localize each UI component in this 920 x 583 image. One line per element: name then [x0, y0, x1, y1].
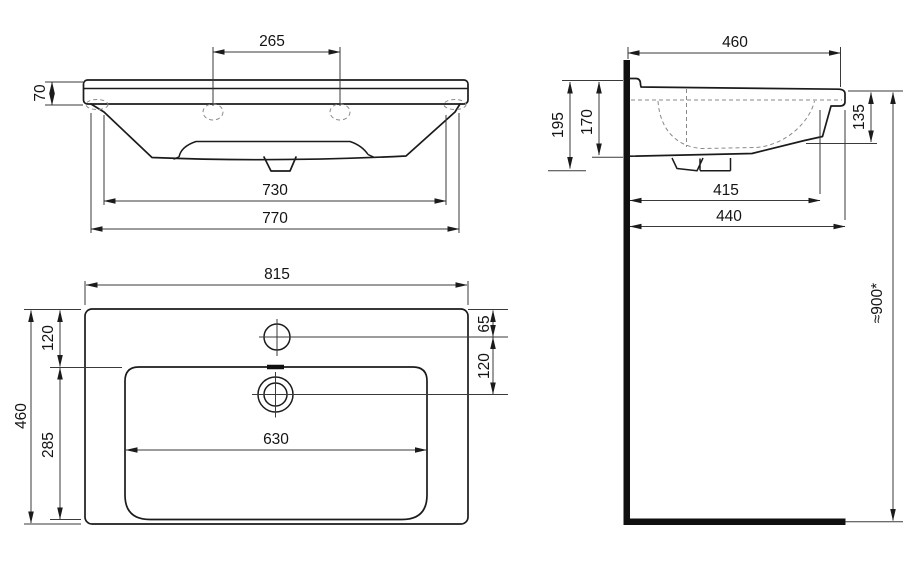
drain-centerlines	[252, 372, 508, 418]
side-drain-trap	[672, 158, 731, 171]
dim-label-height-to-bottom: 170	[579, 109, 596, 135]
dim-label-basin-depth: 285	[40, 432, 57, 458]
dim-label-rim-height: 70	[32, 84, 49, 102]
floor-section	[624, 519, 846, 526]
fixing-hole-right-dashed	[330, 104, 350, 120]
dim-label-overall-width: 815	[264, 266, 290, 283]
dim-label-mounting-height: ≈900*	[869, 283, 886, 323]
dim-label-depth: 460	[722, 34, 748, 51]
technical-drawing-canvas: 265 70 730 770 460 195 170 135 415 440 ≈…	[0, 0, 920, 583]
front-rim-outline	[84, 80, 469, 104]
front-extension-lines	[45, 47, 459, 233]
dim-label-body-width: 770	[262, 210, 288, 227]
dim-label-body-depth: 440	[716, 208, 742, 225]
side-extension-lines	[548, 47, 903, 522]
side-view: 460 195 170 135 415 440 ≈900*	[548, 34, 903, 525]
plan-extension-lines	[24, 281, 508, 524]
front-basin-bulge	[174, 142, 375, 160]
dim-label-inner-width: 730	[262, 182, 288, 199]
dim-label-height-total: 195	[550, 112, 567, 138]
front-body-outline	[91, 104, 460, 160]
dim-label-faucet-to-drain: 120	[476, 353, 493, 379]
dim-label-front-edge-height: 135	[851, 104, 868, 130]
side-bowl-hidden-line	[658, 101, 815, 149]
washbasin-drawing: 265 70 730 770 460 195 170 135 415 440 ≈…	[0, 0, 920, 583]
plan-view: 815 460 120 285 65 120 630	[13, 266, 508, 524]
faucet-centerlines	[259, 319, 508, 356]
front-view: 265 70 730 770	[32, 33, 468, 233]
dim-label-basin-width: 630	[263, 431, 289, 448]
wall-section	[624, 60, 631, 525]
dim-label-overall-depth: 460	[13, 403, 30, 429]
dim-label-inner-depth: 415	[713, 182, 739, 199]
dim-label-hole-spacing: 265	[259, 33, 285, 50]
dim-label-faucet-offset: 65	[476, 315, 493, 332]
fixing-hole-left-dashed	[203, 104, 223, 120]
dim-label-back-to-basin: 120	[40, 325, 57, 351]
side-profile-outline	[630, 79, 845, 157]
